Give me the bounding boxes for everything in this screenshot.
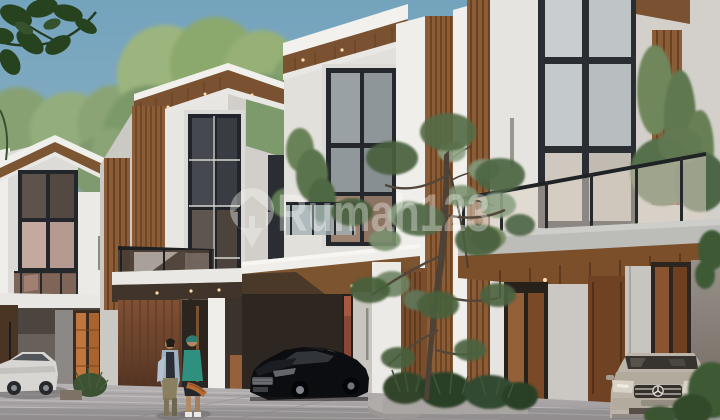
svg-text:Rumah123: Rumah123 (277, 184, 490, 243)
